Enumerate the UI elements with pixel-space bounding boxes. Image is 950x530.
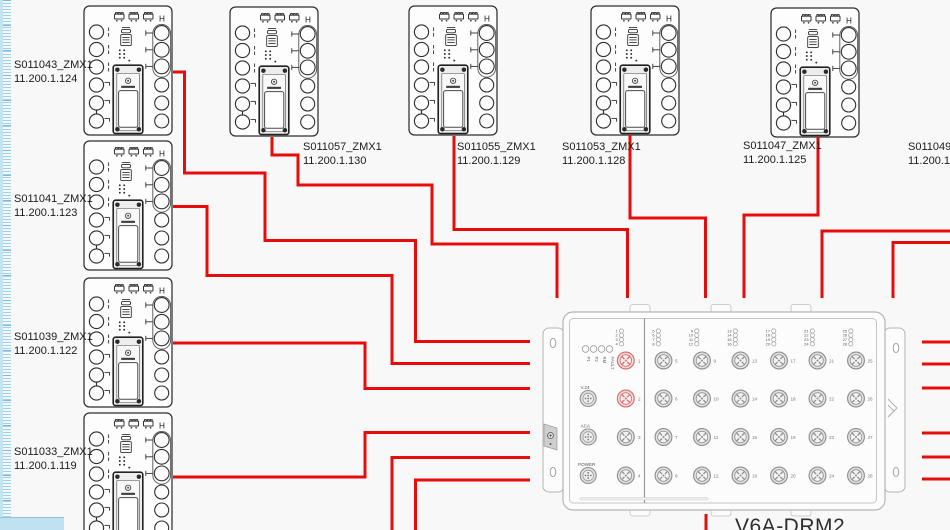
svg-text:26: 26 — [868, 396, 874, 401]
svg-text:22: 22 — [829, 396, 835, 401]
device-label-zmx-049[interactable]: S01104911.200.1 — [908, 141, 950, 168]
zmx1-center-module[interactable] — [113, 65, 143, 133]
drm-bracket-left — [543, 328, 564, 492]
status-led-FAULT — [606, 346, 613, 353]
svg-text:25: 25 — [868, 358, 874, 363]
zmx1-module-zmx-055[interactable]: H — [409, 6, 497, 135]
svg-text:13: 13 — [752, 358, 758, 363]
zmx1-center-module[interactable] — [113, 472, 143, 530]
network-cable-3[interactable] — [173, 343, 530, 389]
status-led-label: RM — [602, 357, 607, 364]
svg-text:3: 3 — [638, 435, 641, 440]
svg-text:14: 14 — [752, 396, 758, 401]
zmx1-module-zmx-033[interactable]: H — [84, 413, 172, 530]
status-led-label: FAULT — [610, 357, 615, 370]
network-cable-12[interactable] — [893, 243, 950, 299]
device-label-zmx-053[interactable]: S011053_ZMX111.200.1.128 — [562, 141, 641, 168]
svg-text:27: 27 — [868, 435, 874, 440]
device-name: S011039_ZMX1 — [14, 331, 93, 345]
h-icon: H — [305, 15, 311, 24]
svg-text:6: 6 — [675, 396, 678, 401]
device-label-zmx-047[interactable]: S011047_ZMX111.200.1.125 — [743, 140, 822, 167]
zmx1-module-zmx-047[interactable]: H — [771, 8, 859, 137]
device-label-zmx-057[interactable]: S011057_ZMX111.200.1.130 — [303, 141, 382, 168]
device-name: S011049 — [908, 141, 950, 155]
device-ip: 11.200.1.119 — [14, 460, 93, 474]
device-name: S011057_ZMX1 — [303, 141, 382, 155]
zmx1-center-module[interactable] — [800, 67, 830, 135]
svg-text:10: 10 — [714, 396, 720, 401]
network-cable-9[interactable] — [630, 135, 706, 298]
zmx1-center-module[interactable] — [620, 65, 650, 133]
status-led-label: P1 — [586, 357, 591, 363]
device-ip: 11.200.1.124 — [14, 73, 93, 87]
device-name: S011053_ZMX1 — [562, 141, 641, 155]
device-ip: 11.200.1 — [908, 155, 950, 169]
svg-text:12: 12 — [689, 341, 693, 346]
network-cable-4[interactable] — [173, 433, 530, 478]
status-led-P1 — [582, 346, 589, 353]
zmx1-center-module[interactable] — [259, 66, 289, 134]
status-led-P2 — [590, 346, 597, 353]
svg-text:21: 21 — [829, 358, 835, 363]
svg-text:16: 16 — [752, 473, 758, 478]
network-cable-5[interactable] — [392, 458, 530, 530]
svg-text:7: 7 — [675, 435, 678, 440]
status-led-RM — [598, 346, 605, 353]
svg-text:8: 8 — [675, 473, 678, 478]
drm-bracket-right — [884, 328, 905, 492]
svg-text:23: 23 — [829, 435, 835, 440]
device-ip: 11.200.1.125 — [743, 154, 822, 168]
device-ip: 11.200.1.130 — [303, 155, 382, 169]
svg-text:4: 4 — [638, 473, 641, 478]
h-icon: H — [159, 14, 165, 23]
device-name: S011041_ZMX1 — [14, 193, 93, 207]
zmx1-module-zmx-041[interactable]: H — [84, 141, 172, 270]
svg-text:8: 8 — [652, 341, 654, 346]
zmx1-module-zmx-043[interactable]: H — [84, 6, 172, 135]
device-ip: 11.200.1.129 — [457, 155, 536, 169]
device-ip: 11.200.1.128 — [562, 155, 641, 169]
svg-text:1: 1 — [638, 358, 641, 363]
drm-device[interactable]: P1 P2 RM FAULT 1 2 3 4 1 2 3 4 V.24 ACA … — [543, 305, 905, 517]
device-ip: 11.200.1.123 — [14, 207, 93, 221]
svg-text:18: 18 — [791, 396, 797, 401]
status-led-label: P2 — [594, 357, 599, 363]
svg-text:2: 2 — [638, 396, 641, 401]
zmx1-center-module[interactable] — [113, 337, 143, 405]
device-label-zmx-055[interactable]: S011055_ZMX111.200.1.129 — [457, 141, 536, 168]
svg-text:28: 28 — [843, 341, 847, 346]
device-name: S011033_ZMX1 — [14, 446, 93, 460]
ruler-top — [0, 0, 950, 6]
device-label-zmx-041[interactable]: S011041_ZMX111.200.1.123 — [14, 193, 93, 220]
svg-text:5: 5 — [675, 358, 678, 363]
diagram-canvas[interactable]: H H — [0, 0, 950, 530]
svg-text:V.24: V.24 — [581, 385, 590, 390]
svg-text:11: 11 — [714, 435, 719, 440]
h-icon: H — [159, 149, 165, 158]
zmx1-center-module[interactable] — [113, 200, 143, 268]
zmx1-module-zmx-053[interactable]: H — [591, 6, 679, 135]
ruler-left — [0, 0, 11, 530]
drm-title[interactable]: V6A-DRM2 — [735, 515, 845, 530]
device-name: S011047_ZMX1 — [743, 140, 822, 154]
svg-text:12: 12 — [714, 473, 720, 478]
device-ip: 11.200.1.122 — [14, 345, 93, 359]
zmx1-module-zmx-057[interactable]: H — [230, 7, 318, 136]
network-cable-6[interactable] — [416, 480, 531, 530]
svg-text:ACA: ACA — [581, 424, 591, 429]
h-icon: H — [159, 421, 165, 430]
svg-text:POWER: POWER — [578, 462, 596, 467]
drm-body — [563, 312, 885, 510]
h-icon: H — [484, 14, 490, 23]
svg-text:20: 20 — [791, 473, 797, 478]
diagram-layer: H H — [0, 0, 950, 530]
svg-text:17: 17 — [791, 358, 797, 363]
svg-text:19: 19 — [791, 435, 797, 440]
svg-text:16: 16 — [727, 341, 731, 346]
h-icon: H — [846, 16, 852, 25]
zmx1-center-module[interactable] — [438, 65, 468, 133]
device-name: S011043_ZMX1 — [14, 59, 93, 73]
svg-text:24: 24 — [829, 473, 835, 478]
zmx1-module-zmx-039[interactable]: H — [84, 278, 172, 407]
svg-text:28: 28 — [868, 473, 874, 478]
canvas-corner-block — [0, 517, 64, 530]
svg-text:9: 9 — [714, 358, 717, 363]
h-icon: H — [666, 14, 672, 23]
device-label-zmx-033[interactable]: S011033_ZMX111.200.1.119 — [14, 446, 93, 473]
device-name: S011055_ZMX1 — [457, 141, 536, 155]
svg-text:15: 15 — [752, 435, 758, 440]
h-icon: H — [159, 286, 165, 295]
device-label-zmx-039[interactable]: S011039_ZMX111.200.1.122 — [14, 331, 93, 358]
device-label-zmx-043[interactable]: S011043_ZMX111.200.1.124 — [14, 59, 93, 86]
